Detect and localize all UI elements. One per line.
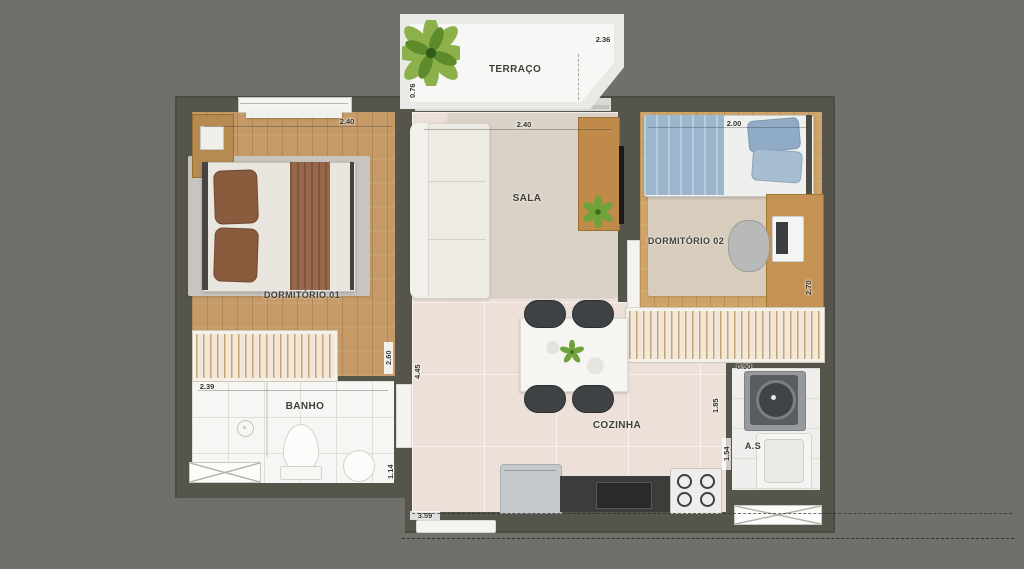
service-window-marker (734, 505, 822, 525)
laundry-tank-basin (764, 439, 804, 483)
pillow-brown-1 (213, 169, 259, 225)
room-label-banho: BANHO (265, 401, 345, 412)
dim-banho-depth: 1.14 (386, 456, 395, 488)
room-label-dormitorio-02: DORMITÓRIO 02 (616, 236, 756, 246)
shower-drain-center (243, 426, 246, 429)
dimension-line (204, 126, 392, 127)
dimension-line (424, 129, 612, 130)
washing-machine-door (756, 380, 796, 420)
dim-cozinha-depth: 4.45 (413, 356, 422, 388)
pillow-blue-2 (751, 148, 803, 183)
sofa-cushion-line (428, 239, 486, 240)
bedroom1-window-glass (240, 103, 348, 104)
dining-chair (572, 385, 614, 413)
computer-screen (776, 222, 788, 254)
plant-icon (582, 196, 614, 228)
dim-as-depth-lower: 1.54 (722, 438, 731, 470)
washing-machine-hub (771, 395, 776, 400)
shower-partition (266, 381, 268, 457)
bedroom1-wardrobe (193, 331, 337, 381)
fridge-line (504, 470, 556, 471)
room-label-terraco: TERRAÇO (465, 64, 565, 75)
sofa-cushion-line (428, 181, 486, 182)
dimension-line (198, 390, 388, 391)
dining-chair (524, 385, 566, 413)
double-bed-headboard (202, 162, 208, 290)
floor-plan-canvas: TERRAÇO DORMITÓRIO 01 SALA DORMITÓRIO 02… (0, 0, 1024, 569)
stove-burner (677, 474, 692, 489)
dining-chair (572, 300, 614, 328)
dim-dormitorio-02-depth: 2.70 (804, 272, 813, 304)
bedroom2-door (627, 240, 640, 308)
dim-dormitorio-02-width: 2.00 (718, 119, 750, 128)
bathroom-sink (343, 450, 375, 482)
dim-sala-width: 2.40 (508, 120, 540, 129)
dim-terraco-width: 2.36 (588, 35, 618, 44)
dimension-dashed-line (402, 538, 1014, 539)
stove-burner (677, 492, 692, 507)
stove-burner (700, 492, 715, 507)
bedroom1-window-sill (246, 111, 342, 118)
bedroom1-dresser-decor (200, 126, 224, 150)
dim-as-width: 0.90 (728, 362, 760, 371)
terrace-dashed-line (578, 54, 580, 100)
bed-runner (290, 162, 330, 290)
room-label-dormitorio-01: DORMITÓRIO 01 (222, 290, 382, 300)
fridge (500, 464, 562, 514)
bedroom2-wardrobe (626, 308, 824, 362)
dim-banho-width: 2.39 (192, 382, 222, 391)
room-label-sala: SALA (497, 193, 557, 204)
dim-dormitorio-01-width: 2.40 (330, 117, 364, 126)
dining-chair (524, 300, 566, 328)
pillow-brown-2 (213, 227, 259, 283)
banho-door (396, 384, 412, 448)
dim-wall-260: 2.60 (384, 342, 393, 374)
desk-chair (728, 220, 770, 272)
dimension-dashed-line (412, 513, 1012, 514)
toilet-tank (280, 466, 322, 480)
pillow-blue-1 (747, 117, 802, 153)
sofa-backrest (410, 123, 429, 297)
shower-box-marker (189, 462, 261, 483)
plant-icon (560, 340, 584, 364)
kitchen-sink (596, 482, 652, 509)
double-bed-footboard (350, 162, 354, 290)
stove (670, 468, 722, 514)
room-label-area-servico: A.S (740, 441, 766, 451)
toilet (283, 424, 319, 472)
dim-terraco-depth: 0.76 (408, 76, 417, 106)
stove-burner (700, 474, 715, 489)
dim-as-depth-upper: 1.85 (711, 390, 720, 422)
entry-door-sill (416, 520, 496, 533)
room-label-cozinha: COZINHA (582, 420, 652, 431)
tv-panel (619, 146, 624, 224)
